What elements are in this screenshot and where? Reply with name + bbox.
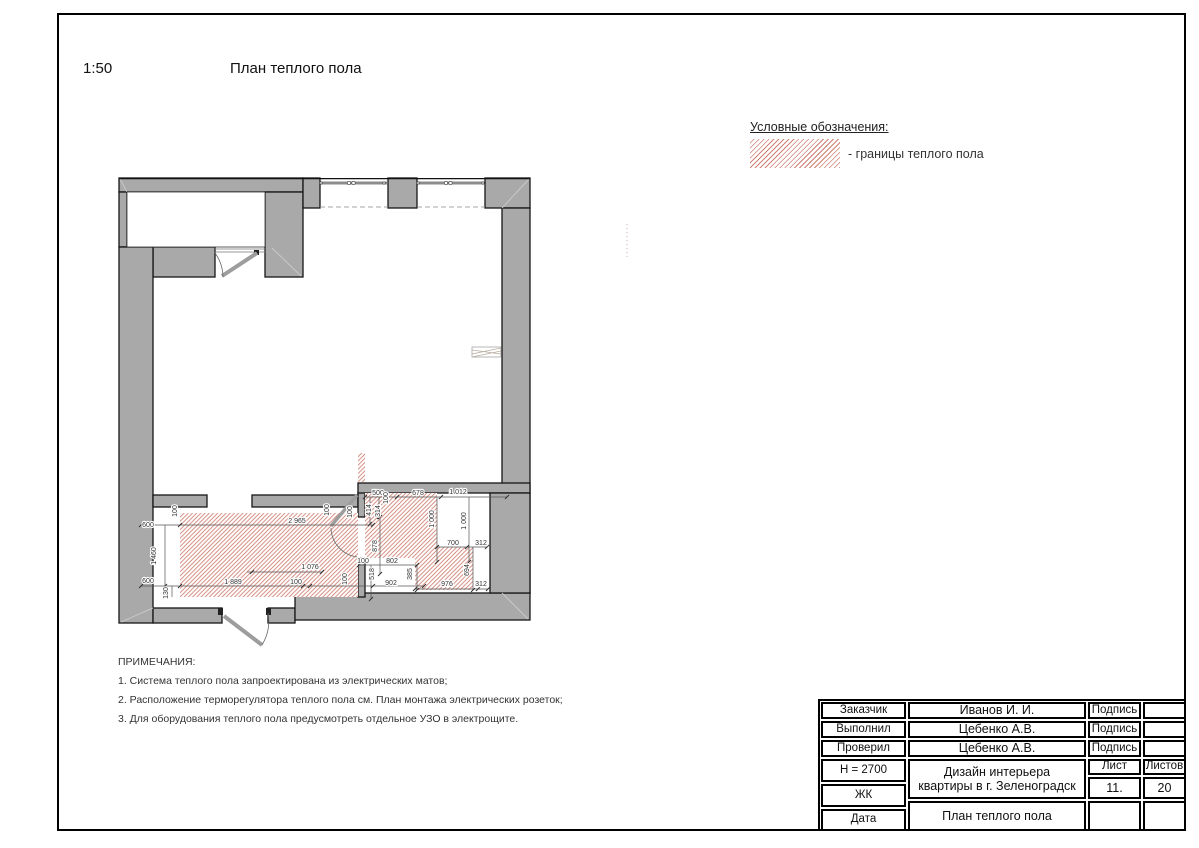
dim-label: 1 460 xyxy=(151,547,158,565)
sheets-label-cell: Листов xyxy=(1143,759,1186,775)
dim-label: 1 076 xyxy=(301,564,319,571)
title-block-label-checker: Проверил xyxy=(821,740,906,757)
title-block-label-author: Выполнил xyxy=(821,721,906,738)
dim-label: 314 xyxy=(375,505,382,517)
dim-label: 312 xyxy=(475,540,487,547)
sheets-total-cell: 20 xyxy=(1143,777,1186,799)
dim-label: 694 xyxy=(464,564,471,576)
dim-label: 700 xyxy=(447,540,459,547)
wall-niche xyxy=(127,192,265,247)
heated-floor-strip-doorway xyxy=(358,453,365,482)
dim-label: 385 xyxy=(407,568,414,580)
dim-label: 100 xyxy=(383,492,390,504)
dim-label: 1 012 xyxy=(449,489,467,496)
project-title-cell: Дизайн интерьера квартиры в г. Зеленогра… xyxy=(908,759,1086,799)
dim-label: 2 965 xyxy=(288,518,306,525)
title-block: Заказчик Иванов И. И. Подпись Выполнил Ц… xyxy=(818,699,1186,831)
dim-label: 130 xyxy=(163,587,170,599)
dim-label: 802 xyxy=(386,558,398,565)
sheet-label-cell: Лист xyxy=(1088,759,1141,775)
note-item: 1. Система теплого пола запроектирована … xyxy=(118,675,447,687)
dim-label: 100 xyxy=(172,505,179,517)
zhk-cell: ЖК xyxy=(821,784,906,807)
note-item: 3. Для оборудования теплого пола предусм… xyxy=(118,713,518,725)
title-block-author-name: Цебенко А.В. xyxy=(908,721,1086,738)
door-icon-entrance xyxy=(218,608,271,645)
drawing-title-cell: План теплого пола xyxy=(908,801,1086,831)
sheet: { "sheet": { "scale": "1:50", "title": "… xyxy=(0,0,1199,848)
door-icon-hall xyxy=(214,249,266,277)
signature-cell xyxy=(1143,740,1186,757)
dim-label: 414 xyxy=(366,504,373,516)
dim-label: 878 xyxy=(372,540,379,552)
signature-cell xyxy=(1143,721,1186,738)
title-block-sign-label: Подпись xyxy=(1088,740,1141,757)
empty-cell xyxy=(1143,801,1186,831)
date-label-cell: Дата xyxy=(821,809,906,831)
sheet-number-cell: 11. xyxy=(1088,777,1141,799)
dim-label: 1 000 xyxy=(461,512,468,530)
dim-label: 518 xyxy=(369,568,376,580)
title-block-sign-label: Подпись xyxy=(1088,721,1141,738)
dim-label: 100 xyxy=(290,579,302,586)
dim-label: 100 xyxy=(342,573,349,585)
dim-label: 1 000 xyxy=(429,510,436,528)
dim-label: 100 xyxy=(347,506,354,518)
note-item: 2. Расположение терморегулятора теплого … xyxy=(118,694,563,706)
dim-label: 976 xyxy=(441,581,453,588)
title-block-sign-label: Подпись xyxy=(1088,702,1141,719)
dim-label: 100 xyxy=(324,504,331,516)
dim-label: 1 889 xyxy=(224,579,242,586)
dim-label: 600 xyxy=(142,522,154,529)
dim-label: 600 xyxy=(142,578,154,585)
dim-label: 100 xyxy=(357,558,369,565)
empty-cell xyxy=(1088,801,1141,831)
radiator-icon xyxy=(472,347,501,357)
dim-label: 902 xyxy=(385,580,397,587)
title-block-checker-name: Цебенко А.В. xyxy=(908,740,1086,757)
dim-label: 678 xyxy=(412,490,424,497)
title-block-label-customer: Заказчик xyxy=(821,702,906,719)
dim-label: 312 xyxy=(475,581,487,588)
signature-cell xyxy=(1143,702,1186,719)
notes-heading: ПРИМЕЧАНИЯ: xyxy=(118,656,195,668)
title-block-customer-name: Иванов И. И. xyxy=(908,702,1086,719)
ceiling-height-cell: H = 2700 xyxy=(821,759,906,782)
